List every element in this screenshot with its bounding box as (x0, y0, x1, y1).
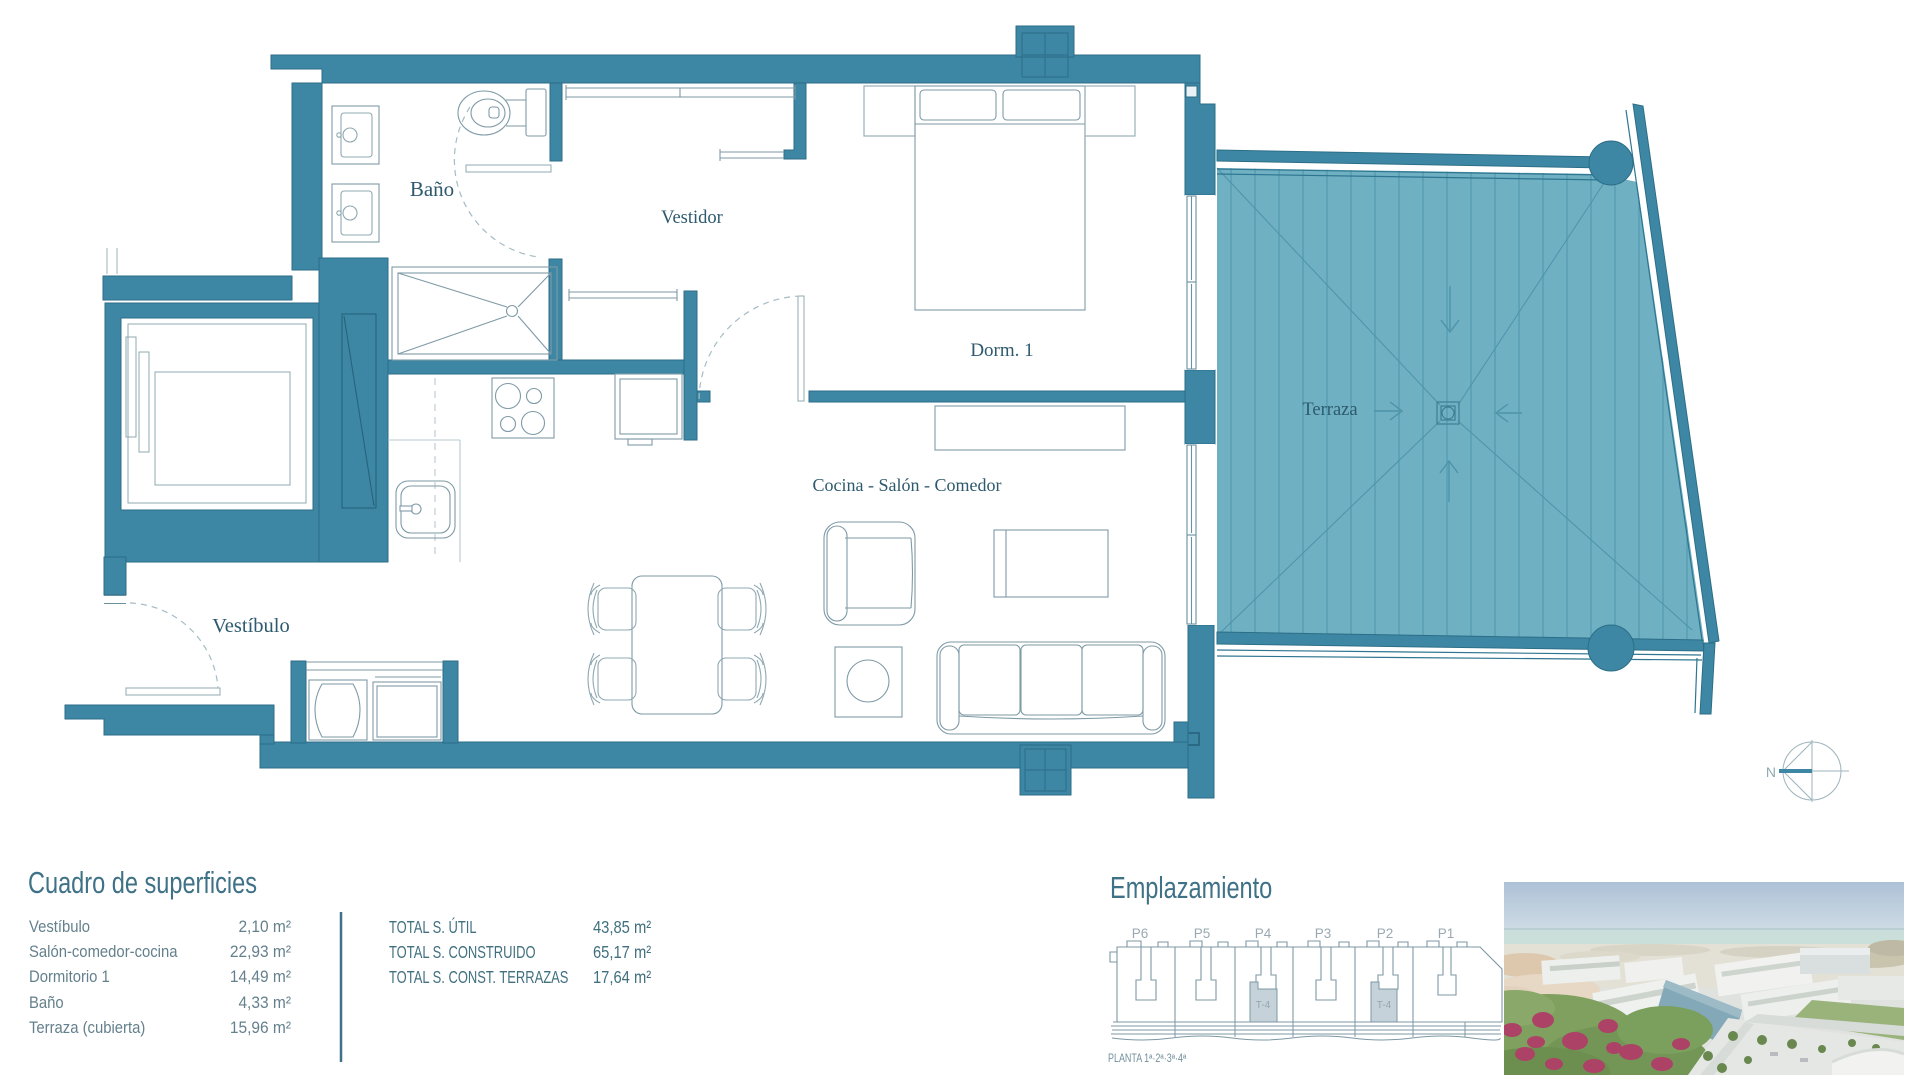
svg-text:P6: P6 (1132, 926, 1149, 941)
svg-text:P5: P5 (1194, 926, 1211, 941)
svg-text:P4: P4 (1255, 926, 1272, 941)
svg-text:Dormitorio 1: Dormitorio 1 (29, 968, 110, 986)
svg-text:Baño: Baño (29, 994, 64, 1012)
svg-text:N: N (1766, 764, 1776, 780)
svg-text:P3: P3 (1315, 926, 1332, 941)
svg-text:Cuadro de superficies: Cuadro de superficies (28, 865, 257, 900)
svg-text:P1: P1 (1438, 926, 1455, 941)
svg-text:22,93 m²: 22,93 m² (230, 944, 292, 962)
svg-text:14,49 m²: 14,49 m² (230, 969, 292, 987)
svg-text:65,17 m²: 65,17 m² (593, 943, 652, 963)
svg-text:Vestíbulo: Vestíbulo (29, 918, 90, 936)
svg-text:4,33 m²: 4,33 m² (238, 995, 291, 1013)
svg-text:Terraza (cubierta): Terraza (cubierta) (29, 1019, 145, 1037)
svg-text:TOTAL S. CONST. TERRAZAS: TOTAL S. CONST. TERRAZAS (389, 968, 568, 988)
svg-text:Vestíbulo: Vestíbulo (212, 615, 289, 637)
svg-text:TOTAL S. CONSTRUIDO: TOTAL S. CONSTRUIDO (389, 943, 536, 963)
svg-text:Dorm. 1: Dorm. 1 (970, 340, 1033, 361)
svg-text:Vestidor: Vestidor (661, 208, 723, 228)
svg-text:17,64 m²: 17,64 m² (593, 968, 652, 988)
svg-text:Salón-comedor-cocina: Salón-comedor-cocina (29, 943, 178, 961)
svg-text:Baño: Baño (410, 177, 454, 201)
svg-text:43,85 m²: 43,85 m² (593, 918, 652, 938)
svg-text:P2: P2 (1377, 926, 1394, 941)
svg-text:15,96 m²: 15,96 m² (230, 1020, 292, 1038)
svg-text:PLANTA 1ª·2ª·3ª·4ª: PLANTA 1ª·2ª·3ª·4ª (1108, 1053, 1186, 1065)
svg-text:TOTAL S. ÚTIL: TOTAL S. ÚTIL (389, 916, 477, 938)
svg-text:Terraza: Terraza (1302, 400, 1357, 420)
svg-text:Emplazamiento: Emplazamiento (1110, 870, 1272, 905)
svg-text:2,10 m²: 2,10 m² (238, 919, 291, 937)
svg-text:T-4: T-4 (1377, 1000, 1392, 1011)
svg-text:Cocina - Salón - Comedor: Cocina - Salón - Comedor (813, 475, 1002, 495)
svg-text:T-4: T-4 (1256, 1000, 1271, 1011)
